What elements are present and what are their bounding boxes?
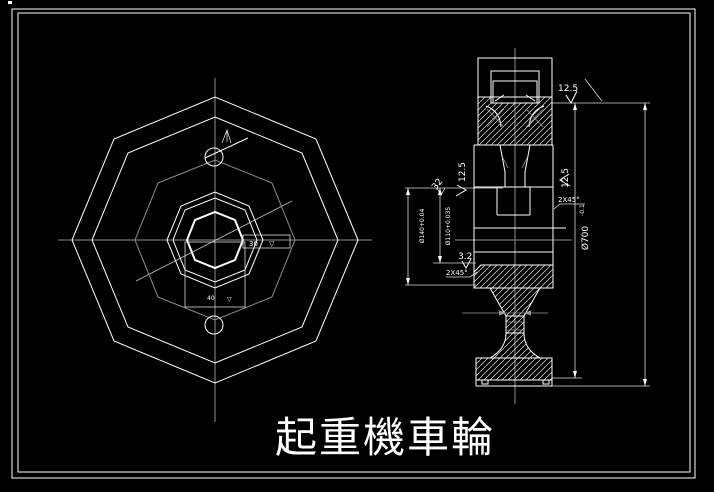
drawing-title: 起重機車輪 [275,413,495,462]
cad-canvas: 30 ▽ 40 ▽ [0,0,714,492]
keyway-dim-label: 40 [207,295,215,302]
od-dimension-label: Ø700 [580,226,591,251]
od-tolerance-label: -0.1 [579,204,586,216]
rim-section-hatch [478,97,552,145]
bore-left-dimension-label: Ø140+0.04 [419,209,426,244]
roughness-left-label: 12.5 [458,162,468,182]
chamfer-left-label: 2X45° [446,269,468,277]
roughness-top-label: 12.5 [558,84,578,94]
bore-dim-label: 30 [249,240,258,248]
chamfer-right-label: 2X45° [558,196,580,204]
bore-right-dimension-label: Ø110+0.035 [445,207,452,246]
bottom-rim-hatch [476,358,552,380]
web-neck-hatch [506,316,524,333]
hub-section-hatch [474,265,553,288]
roughness-triangle-icon: ▽ [269,240,275,248]
crane-wheel-drawing: 30 ▽ 40 ▽ [0,0,714,492]
roughness-triangle-icon: ▽ [227,296,232,303]
cursor-mark [8,1,12,4]
